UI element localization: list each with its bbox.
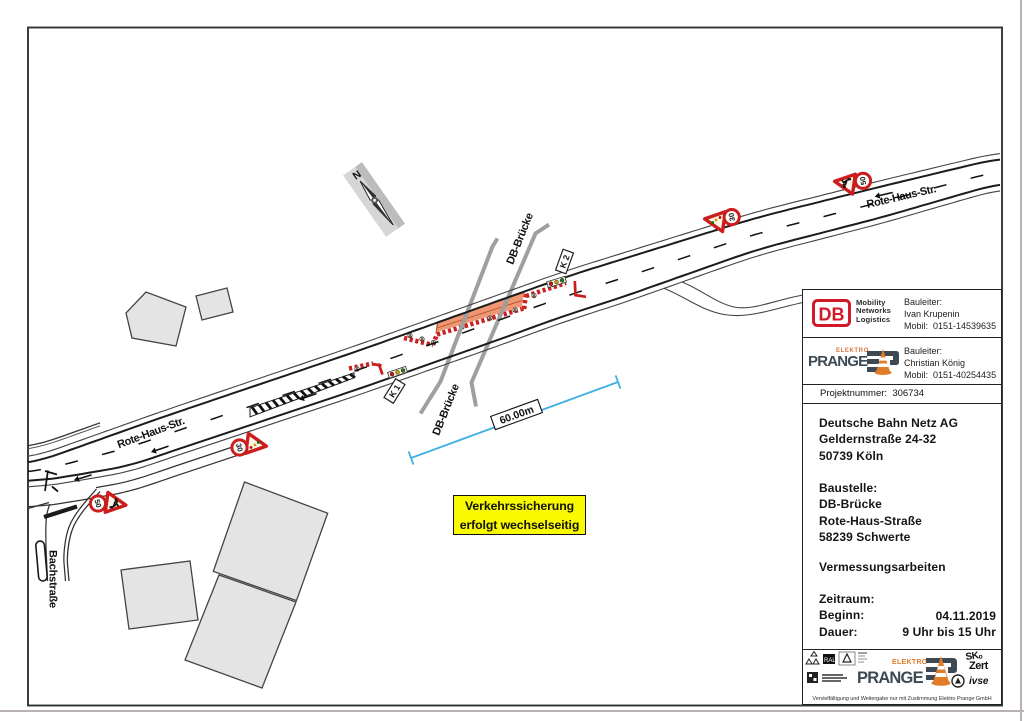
svg-text:RAL: RAL: [824, 658, 836, 664]
svg-text:Bachstraße: Bachstraße: [47, 550, 59, 608]
svg-text:PRANGE: PRANGE: [857, 669, 924, 687]
svg-text:Zert: Zert: [969, 660, 989, 672]
svg-text:ELEKTRO: ELEKTRO: [892, 659, 928, 666]
svg-text:30: 30: [727, 212, 737, 222]
svg-text:50: 50: [858, 176, 868, 186]
svg-text:DB: DB: [819, 305, 845, 325]
svg-text:ivse: ivse: [969, 676, 989, 687]
